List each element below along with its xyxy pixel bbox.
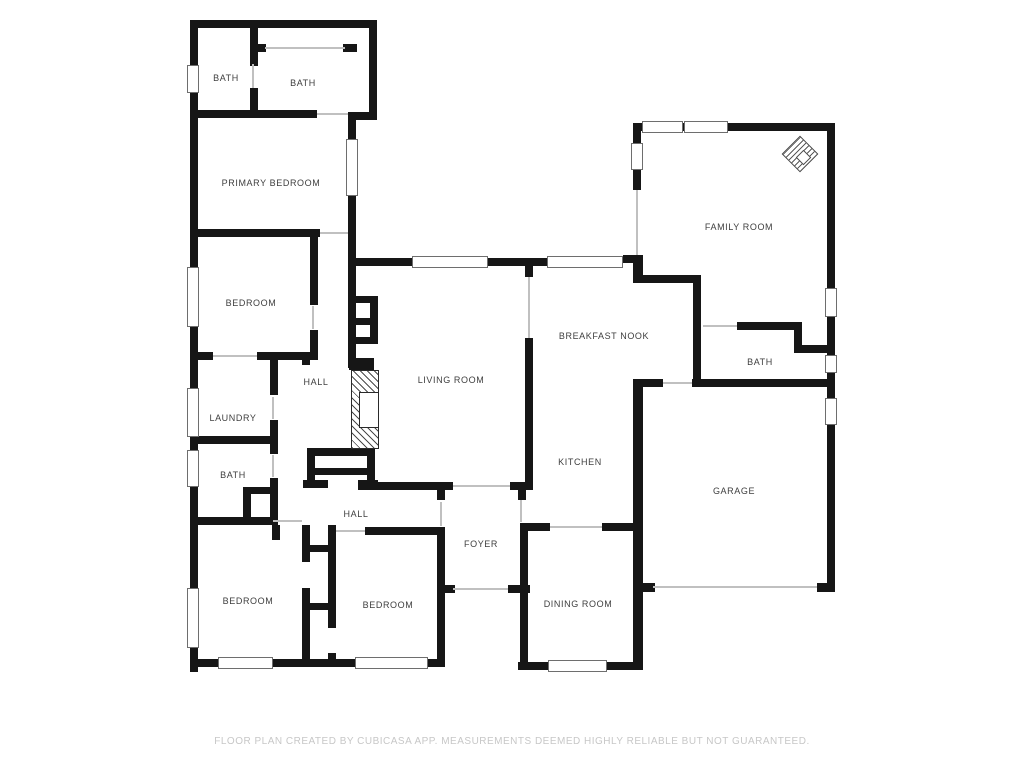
room-label-bedroom-2: BEDROOM [223,596,274,606]
wall-segment [307,448,375,456]
opening-threshold-line [336,530,365,532]
wall-segment [437,527,445,667]
opening-threshold-line [252,64,254,88]
opening-threshold-line [528,277,530,338]
wall-segment [302,352,310,365]
window [825,288,837,317]
window [187,450,199,487]
room-label-bedroom-3: BEDROOM [363,600,414,610]
room-label-living-room: LIVING ROOM [418,375,485,385]
wall-segment [272,525,280,540]
window [187,388,199,437]
opening-threshold-line [312,306,314,329]
room-label-bath-2: BATH [290,78,316,88]
disclaimer-text: FLOOR PLAN CREATED BY CUBICASA APP. MEAS… [0,736,1024,747]
floor-plan: BATHBATHPRIMARY BEDROOMBEDROOMHALLLAUNDR… [0,0,1024,768]
wall-segment [633,255,643,283]
opening-threshold-line [520,500,522,522]
wall-segment [343,44,357,52]
room-label-garage: GARAGE [713,486,755,496]
wall-segment [308,545,330,552]
opening-threshold-line [320,232,348,234]
room-label-primary-bedroom: PRIMARY BEDROOM [222,178,321,188]
wall-segment [520,523,550,531]
wall-segment [270,360,278,395]
window [825,398,837,425]
wall-segment [302,525,310,562]
wall-segment [370,296,378,342]
window [218,657,273,669]
wall-segment [693,275,701,380]
wall-segment [508,585,530,593]
wall-segment [252,44,266,52]
wall-segment [633,379,663,387]
wall-segment [302,588,310,667]
opening-threshold-line [272,397,274,419]
opening-threshold-line [703,325,737,327]
window [346,139,358,196]
wall-segment [358,480,378,488]
opening-threshold-line [636,190,638,255]
opening-threshold-line [453,485,510,487]
wall-segment [525,262,533,277]
wall-segment [518,490,526,500]
room-label-laundry: LAUNDRY [209,413,256,423]
wall-segment [633,123,641,143]
window [684,121,728,133]
room-label-dining-room: DINING ROOM [544,599,613,609]
window [548,660,607,672]
wall-segment [308,603,330,610]
opening-threshold-line [273,520,302,522]
room-label-hall-1: HALL [304,377,329,387]
opening-threshold-line [453,588,508,590]
wall-segment [525,338,533,490]
wall-segment [348,266,356,368]
wall-segment [737,322,802,330]
room-label-breakfast-nook: BREAKFAST NOOK [559,331,649,341]
room-label-family-room: FAMILY ROOM [705,222,773,232]
wall-segment [310,468,370,475]
window [547,256,623,268]
room-label-bath-4: BATH [747,357,773,367]
wall-segment [633,170,641,190]
wall-segment [190,436,278,444]
wall-segment [310,233,318,305]
wall-segment [303,480,328,488]
wall-segment [243,487,277,494]
fireplace-firebox [359,392,379,428]
opening-threshold-line [317,113,348,115]
opening-threshold-line [440,502,442,526]
window [412,256,488,268]
wall-segment [348,258,412,266]
wall-segment [692,379,835,387]
window [187,65,199,93]
wall-segment [250,20,258,66]
wall-segment [190,110,317,118]
wall-segment [190,352,213,360]
wall-segment [365,527,443,535]
room-label-foyer: FOYER [464,539,498,549]
wall-segment [348,196,356,266]
room-label-hall-2: HALL [344,509,369,519]
wall-segment [190,229,320,237]
wall-segment [633,583,653,592]
room-label-bath-3: BATH [220,470,246,480]
window [642,121,683,133]
wall-segment [488,258,547,266]
wall-segment [643,275,697,283]
wall-segment [328,525,336,628]
opening-threshold-line [272,455,274,477]
opening-threshold-line [213,355,257,357]
opening-threshold-line [265,47,345,49]
wall-segment [369,20,377,120]
opening-threshold-line [550,526,602,528]
wall-segment [348,112,356,139]
wall-segment [520,523,528,670]
wall-segment [190,517,273,525]
room-label-bedroom-1: BEDROOM [226,298,277,308]
wall-segment [437,490,445,500]
room-label-kitchen: KITCHEN [558,457,602,467]
wall-segment [190,20,377,28]
wall-segment [270,444,278,454]
window [355,657,428,669]
opening-threshold-line [663,382,692,384]
window [631,143,643,170]
wall-segment [794,345,835,353]
window [187,588,199,648]
window [825,355,837,373]
wall-segment [349,358,374,370]
wall-segment [510,482,533,490]
window [187,267,199,327]
wall-segment [633,379,643,670]
room-label-bath-1: BATH [213,73,239,83]
opening-threshold-line [653,586,817,588]
